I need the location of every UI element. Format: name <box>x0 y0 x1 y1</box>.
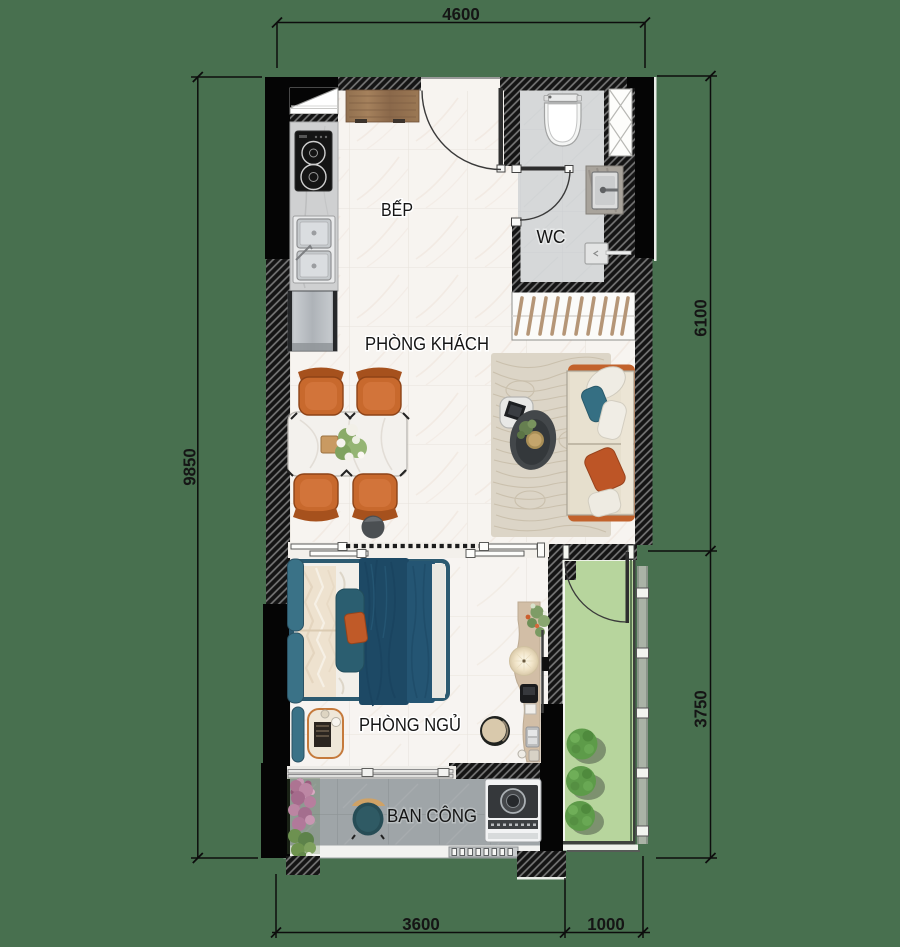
svg-text:WC: WC <box>537 227 566 247</box>
svg-text:1000: 1000 <box>587 914 625 934</box>
svg-text:PHÒNG NGỦ: PHÒNG NGỦ <box>359 714 461 735</box>
svg-text:PHÒNG KHÁCH: PHÒNG KHÁCH <box>365 333 489 354</box>
svg-text:3750: 3750 <box>691 690 711 728</box>
svg-text:4600: 4600 <box>442 4 480 24</box>
svg-text:3600: 3600 <box>402 914 440 934</box>
svg-text:BAN CÔNG: BAN CÔNG <box>387 805 477 826</box>
svg-text:BẾP: BẾP <box>381 199 413 220</box>
svg-text:9850: 9850 <box>180 448 200 486</box>
svg-text:6100: 6100 <box>691 299 711 337</box>
